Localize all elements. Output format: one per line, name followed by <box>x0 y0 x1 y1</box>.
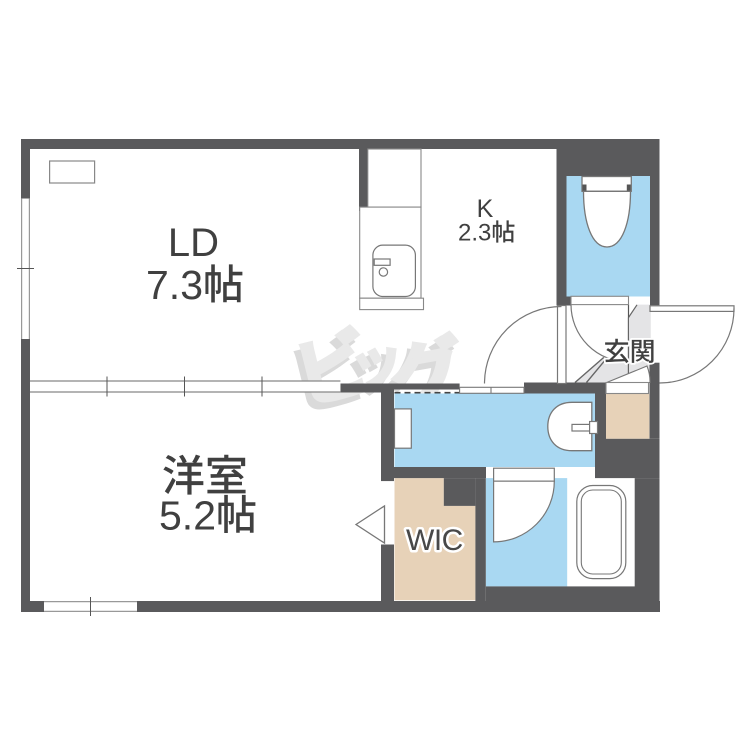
svg-text:5.2: 5.2 <box>159 493 216 539</box>
svg-text:LD: LD <box>168 221 219 265</box>
svg-text:WIC: WIC <box>406 524 463 557</box>
svg-text:2.3: 2.3 <box>458 220 491 247</box>
svg-text:7.3: 7.3 <box>146 262 203 308</box>
